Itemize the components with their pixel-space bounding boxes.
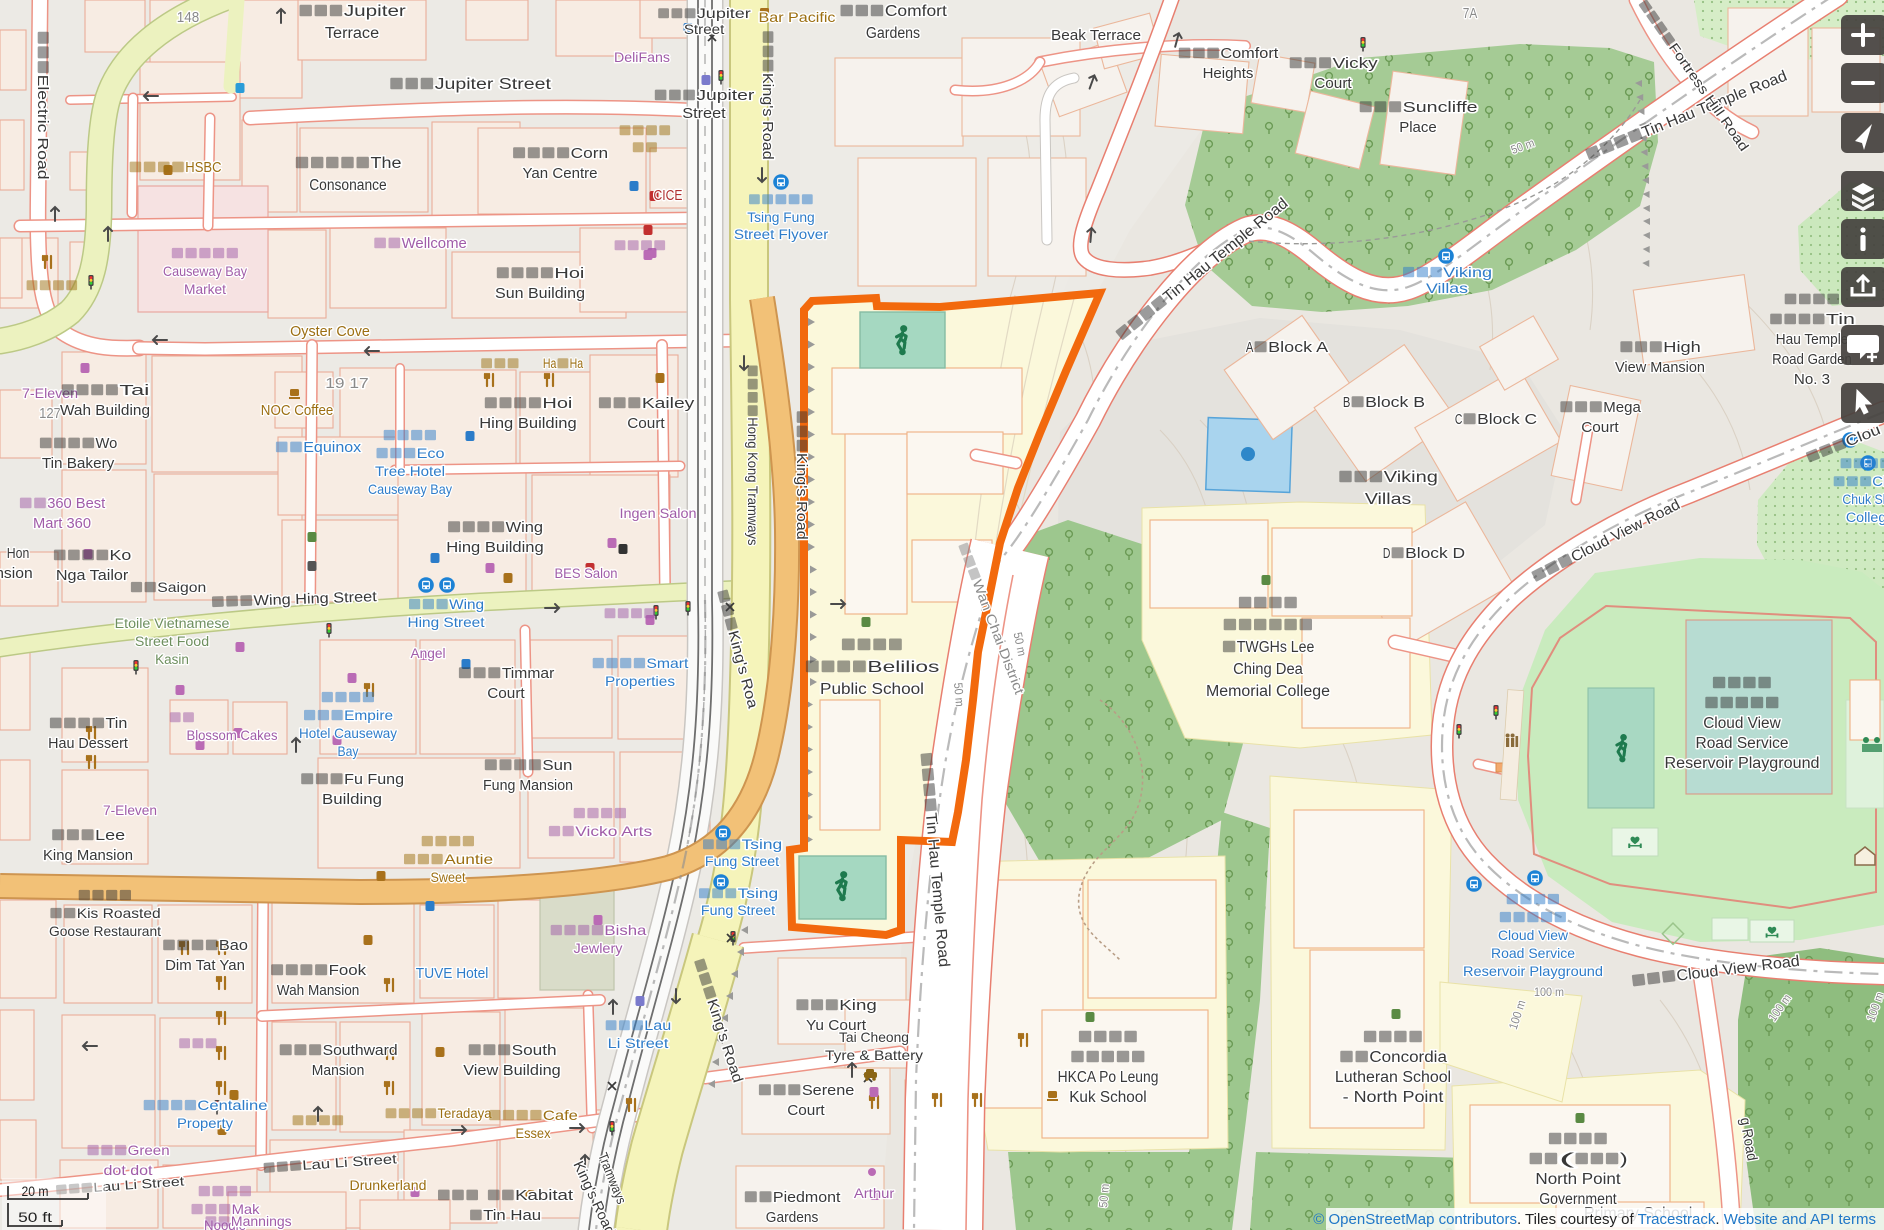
svg-text:Vicko Arts: Vicko Arts [575,823,652,839]
svg-text:Causeway Bay: Causeway Bay [163,263,247,279]
svg-text:Hoi: Hoi [542,395,572,412]
svg-text:Vicky: Vicky [1333,55,1379,72]
svg-text:Public School: Public School [820,681,924,698]
svg-text:A: A [1246,339,1254,356]
svg-text:Wellcome: Wellcome [402,236,467,252]
svg-text:Equinox: Equinox [303,440,362,456]
svg-text:Mart 360: Mart 360 [33,516,91,532]
svg-text:Ingen Salon: Ingen Salon [620,505,697,521]
svg-text:Suncliffe: Suncliffe [1403,99,1478,116]
svg-text:Fung Mansion: Fung Mansion [483,777,573,794]
svg-text:Place: Place [1399,119,1437,136]
svg-text:Mannings: Mannings [231,1214,292,1229]
svg-text:Hoi: Hoi [554,265,584,282]
svg-text:Angel: Angel [411,645,446,661]
svg-text:Ko: Ko [110,548,132,564]
svg-text:(: ( [1559,1151,1577,1168]
svg-text:Ha: Ha [543,356,557,371]
svg-text:Street: Street [682,106,726,122]
svg-text:Court: Court [1314,75,1352,92]
svg-text:Mega: Mega [1603,399,1641,416]
svg-text:Lee: Lee [95,827,125,844]
svg-text:Hing Building: Hing Building [479,415,577,432]
svg-text:Block D: Block D [1405,545,1465,562]
svg-text:Green: Green [128,1142,170,1158]
svg-text:Lutheran School: Lutheran School [1335,1069,1451,1086]
svg-text:Fung Street: Fung Street [705,854,779,869]
svg-text:Tsing: Tsing [742,837,783,852]
svg-text:Colleg: Colleg [1846,510,1884,525]
svg-text:Cafe: Cafe [543,1107,578,1123]
svg-text:Court: Court [1581,419,1619,436]
svg-text:Fu Fung: Fu Fung [344,771,404,788]
svg-text:Piedmont: Piedmont [773,1189,841,1206]
svg-text:Jupiter: Jupiter [344,3,406,20]
svg-text:Beak Terrace: Beak Terrace [1051,27,1141,44]
svg-text:Timmar: Timmar [502,665,555,682]
svg-text:Jewlery: Jewlery [574,940,623,956]
svg-text:Consonance: Consonance [309,177,387,194]
svg-text:Kis Roasted: Kis Roasted [77,905,161,921]
svg-text:7A: 7A [1463,6,1478,22]
svg-text:Essex: Essex [516,1125,551,1141]
svg-text:50 ft: 50 ft [18,1210,52,1225]
svg-text:): ) [1620,1151,1628,1168]
svg-text:Auntie: Auntie [444,851,493,867]
svg-text:Tin Hau: Tin Hau [483,1208,541,1224]
svg-text:Smart: Smart [646,655,688,671]
svg-text:South: South [512,1042,557,1059]
svg-text:Concordia: Concordia [1369,1049,1447,1066]
svg-text:Hing Building: Hing Building [446,539,544,556]
svg-text:Properties: Properties [605,673,675,689]
svg-text:Villas: Villas [1426,280,1468,296]
svg-text:Court: Court [787,1102,825,1119]
svg-text:HSBC: HSBC [185,160,221,176]
svg-text:Wing: Wing [506,519,543,536]
svg-text:Southward: Southward [323,1042,398,1059]
svg-text:Teradaya: Teradaya [438,1106,492,1121]
svg-text:127: 127 [39,406,61,422]
svg-text:Che: Che [1872,474,1884,489]
svg-text:Street: Street [684,22,725,37]
svg-text:King's Road: King's Road [759,73,775,160]
svg-text:DeliFans: DeliFans [614,49,670,65]
svg-text:148: 148 [177,9,200,26]
svg-text:King's Road: King's Road [793,453,809,540]
svg-text:Hau Temple: Hau Temple [1776,332,1849,348]
svg-text:Jupiter: Jupiter [696,88,754,104]
svg-text:TWGHs Lee: TWGHs Lee [1237,639,1315,656]
svg-text:Road Garden: Road Garden [1772,352,1852,368]
svg-text:Block C: Block C [1477,411,1537,428]
svg-text:Serene: Serene [802,1082,855,1099]
svg-text:Fook: Fook [329,962,367,979]
svg-text:Causeway Bay: Causeway Bay [368,481,452,497]
svg-text:Mansion: Mansion [312,1062,365,1079]
svg-text:Tsing Fung: Tsing Fung [747,210,815,225]
svg-text:Drunkerland: Drunkerland [350,1177,427,1193]
svg-text:Block A: Block A [1268,339,1328,356]
svg-text:Sun Building: Sun Building [495,285,585,302]
svg-text:Court: Court [487,685,525,702]
svg-text:Tree Hotel: Tree Hotel [375,463,445,479]
svg-text:Electric Road: Electric Road [34,75,51,180]
svg-text:CICE: CICE [654,188,683,204]
svg-text:King: King [839,997,877,1014]
svg-text:Reservoir Playground: Reservoir Playground [1463,963,1603,979]
svg-text:Hau Dessert: Hau Dessert [48,736,128,752]
svg-text:Bisha: Bisha [604,922,646,938]
svg-text:Tyre & Battery: Tyre & Battery [825,1047,923,1063]
svg-text:Sweet: Sweet [431,869,466,885]
svg-text:Reservoir Playground: Reservoir Playground [1665,755,1820,772]
svg-text:Hon: Hon [7,545,30,562]
svg-text:100 m: 100 m [1534,985,1564,999]
svg-text:Cloud View: Cloud View [1703,715,1781,732]
svg-text:Tai Cheong: Tai Cheong [839,1029,909,1045]
svg-text:Wing: Wing [449,596,484,612]
svg-text:HKCA Po Leung: HKCA Po Leung [1058,1069,1159,1086]
svg-text:Tai: Tai [119,382,149,399]
svg-text:Ching Dea: Ching Dea [1233,661,1303,678]
svg-text:Court: Court [627,415,665,432]
svg-text:Memorial College: Memorial College [1206,683,1330,700]
svg-text:High: High [1663,339,1701,356]
svg-text:Blossom Cakes: Blossom Cakes [187,727,278,743]
svg-text:Li Street: Li Street [608,1036,669,1051]
svg-text:Street Flyover: Street Flyover [734,227,829,242]
svg-text:Building: Building [322,791,382,808]
svg-text:Hong Kong Tramways: Hong Kong Tramways [745,417,760,545]
svg-text:Hotel Causeway: Hotel Causeway [299,725,397,741]
svg-text:The: The [371,155,402,172]
svg-text:Arthur: Arthur [854,1186,895,1201]
svg-text:Terrace: Terrace [325,25,379,42]
svg-text:Hing Street: Hing Street [408,614,485,630]
svg-text:Chuk Sh: Chuk Sh [1842,492,1884,507]
svg-text:20 m: 20 m [22,1184,49,1199]
svg-text:7-Eleven: 7-Eleven [103,803,157,818]
svg-text:360 Best: 360 Best [47,496,105,512]
svg-text:C: C [1455,411,1463,428]
svg-text:Villas: Villas [1365,491,1412,508]
svg-text:Oyster Cove: Oyster Cove [290,324,370,340]
svg-text:Kuk School: Kuk School [1069,1089,1147,1106]
svg-text:Eco: Eco [417,445,445,461]
svg-text:Bao: Bao [219,938,248,954]
svg-text:TUVE Hotel: TUVE Hotel [416,966,489,982]
svg-text:BES Salon: BES Salon [555,565,618,581]
svg-text:Comfort: Comfort [885,3,948,20]
svg-text:Tin Bakery: Tin Bakery [42,456,115,472]
svg-text:Saigon: Saigon [157,579,206,595]
svg-text:19 17: 19 17 [325,376,369,392]
svg-text:Dim Tat Yan: Dim Tat Yan [165,958,245,974]
svg-text:© OpenStreetMap contributors.: © OpenStreetMap contributors. Tiles cour… [1313,1211,1876,1228]
svg-text:50 m: 50 m [1096,1183,1112,1208]
svg-text:Centaline: Centaline [197,1097,267,1113]
svg-text:Wah Building: Wah Building [60,402,150,419]
svg-text:Viking: Viking [1443,264,1492,280]
svg-text:Kasin: Kasin [155,652,189,667]
svg-text:Lau: Lau [644,1018,671,1033]
svg-text:Market: Market [184,281,226,297]
svg-text:Tin: Tin [106,716,128,732]
svg-text:Block B: Block B [1365,394,1425,411]
svg-text:Yan Centre: Yan Centre [523,165,598,182]
svg-text:Sun: Sun [542,757,572,774]
svg-text:Tsing: Tsing [738,886,779,901]
svg-text:No. 3: No. 3 [1794,372,1830,388]
svg-text:Goose Restaurant: Goose Restaurant [49,923,161,939]
svg-text:Heights: Heights [1203,66,1254,82]
svg-text:50 m: 50 m [951,682,967,707]
svg-text:Kabitat: Kabitat [515,1188,573,1204]
svg-text:Road Service: Road Service [1696,735,1789,752]
svg-text:Bay: Bay [338,743,359,759]
svg-text:Viking: Viking [1384,469,1438,486]
svg-text:dot dot: dot dot [104,1162,153,1178]
svg-text:Gardens: Gardens [866,25,920,42]
svg-text:Gardens: Gardens [766,1209,819,1226]
svg-text:King Mansion: King Mansion [43,847,133,864]
svg-text:Road Service: Road Service [1491,945,1575,961]
svg-text:Wah Mansion: Wah Mansion [277,982,360,999]
svg-text:Corn: Corn [571,145,609,162]
svg-text:NOC Coffee: NOC Coffee [261,403,334,419]
svg-text:Wo: Wo [96,436,118,452]
svg-text:Etoile Vietnamese: Etoile Vietnamese [115,616,230,631]
svg-text:View Mansion: View Mansion [1615,359,1705,376]
svg-text:D: D [1383,545,1391,562]
svg-text:B: B [1343,394,1351,411]
svg-text:Jupiter Street: Jupiter Street [435,76,552,93]
svg-text:Belilios: Belilios [867,659,939,676]
svg-text:Ha: Ha [570,356,584,371]
svg-text:Comfort: Comfort [1220,46,1278,62]
svg-text:Jupiter: Jupiter [697,6,752,21]
svg-text:View Building: View Building [463,1062,561,1079]
svg-text:North Point: North Point [1535,1171,1621,1188]
svg-text:Street Food: Street Food [135,634,209,649]
svg-text:nsion: nsion [0,565,33,582]
svg-text:Fung Street: Fung Street [701,903,775,918]
svg-text:Empire: Empire [344,707,393,723]
svg-text:Nga Tailor: Nga Tailor [56,568,129,584]
svg-text:Cloud View: Cloud View [1498,927,1569,943]
svg-text:- North Point: - North Point [1343,1089,1445,1106]
svg-text:Kailey: Kailey [642,395,695,412]
svg-text:Bar Pacific: Bar Pacific [759,9,836,25]
svg-text:Property: Property [177,1115,233,1131]
